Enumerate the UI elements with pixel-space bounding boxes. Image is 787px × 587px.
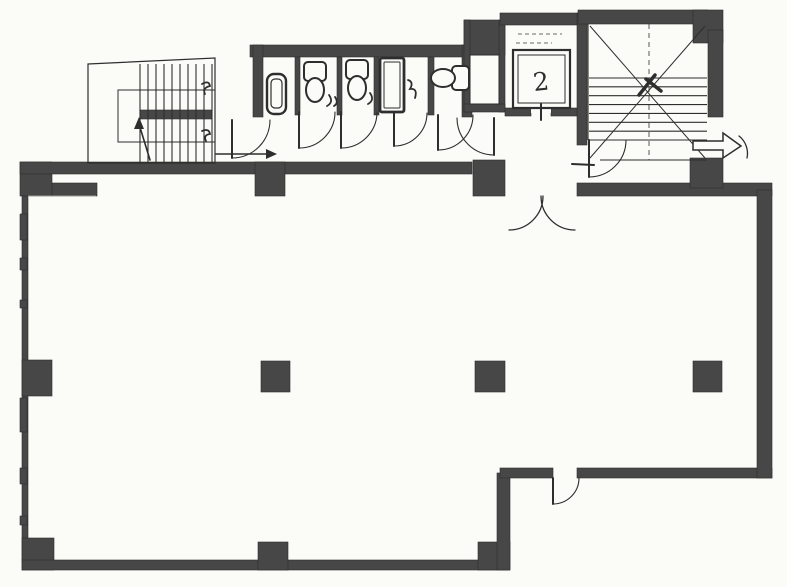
notch-wall-left bbox=[500, 468, 553, 478]
top-wall-right bbox=[577, 183, 772, 196]
double-door-left-swing bbox=[509, 196, 543, 230]
double-door-right-swing bbox=[541, 196, 575, 230]
elevator-top-wall bbox=[500, 13, 587, 25]
shaft-bottom-wall bbox=[464, 104, 505, 112]
shaft-right-wall bbox=[499, 20, 505, 112]
left-wall-dash bbox=[20, 214, 27, 240]
door-stall1-swing bbox=[299, 112, 335, 148]
left-wall-column bbox=[22, 360, 52, 396]
toilet2-bowl bbox=[348, 76, 366, 100]
floor-plan-svg: 2 bbox=[0, 0, 787, 587]
stall-divider-1 bbox=[295, 57, 300, 115]
threshold-mark bbox=[572, 164, 594, 165]
stall-divider-2 bbox=[337, 57, 342, 115]
step-vertical-wall bbox=[497, 473, 510, 570]
left-wall-dash bbox=[20, 300, 27, 308]
toilet-left-wall bbox=[253, 45, 263, 117]
left-wall-dash bbox=[20, 258, 27, 270]
free-column-a bbox=[261, 361, 290, 392]
left-wall-dash bbox=[20, 398, 27, 432]
free-column-c bbox=[693, 361, 722, 392]
shaft-inner-box bbox=[470, 55, 499, 104]
toilet-top-wall bbox=[250, 45, 472, 57]
stair1-landing-bar bbox=[140, 110, 212, 119]
bottom-wall-column bbox=[258, 542, 288, 570]
door-stall3-swing bbox=[394, 113, 427, 146]
door-exit-bottom-swing bbox=[553, 478, 579, 504]
stall-divider-4 bbox=[428, 57, 434, 115]
handwritten-mark bbox=[327, 95, 337, 106]
notch-wall-right bbox=[577, 468, 772, 478]
toilet3-bowl bbox=[431, 69, 455, 87]
left-wall-dash bbox=[20, 516, 27, 525]
elevator-front-wall-right bbox=[551, 108, 577, 116]
door-toilet-area-swing bbox=[232, 120, 270, 158]
door-stall2-swing bbox=[341, 112, 377, 148]
right-wall bbox=[757, 190, 772, 478]
handwritten-mark bbox=[202, 130, 210, 141]
stair2-lower-block bbox=[690, 158, 723, 188]
elevator-front-wall-left bbox=[505, 108, 531, 116]
toilet1-bowl bbox=[306, 78, 324, 102]
handwritten-mark bbox=[202, 82, 210, 94]
stair2-right-wall bbox=[708, 30, 723, 117]
scanned-floor-plan-page: 2 bbox=[0, 0, 787, 587]
left-wall-dash bbox=[20, 468, 27, 484]
top-wall-left bbox=[20, 162, 472, 174]
top-left-ledge bbox=[52, 183, 97, 196]
elevator-right-wall bbox=[577, 13, 587, 145]
stall-divider-3 bbox=[374, 57, 379, 115]
entrance-block-arrow bbox=[693, 133, 741, 158]
free-column-b bbox=[475, 361, 505, 392]
stair2-top-wall bbox=[578, 10, 708, 24]
handwritten-mark bbox=[408, 80, 416, 98]
entry-arrowhead bbox=[266, 149, 277, 159]
elevator-car-mark: 2 bbox=[532, 66, 551, 97]
top-wall-column bbox=[255, 162, 285, 196]
handwritten-mark bbox=[368, 93, 372, 104]
mid-top-pier bbox=[473, 160, 505, 196]
door-lobby-swing bbox=[457, 118, 494, 155]
door-stair2-swing bbox=[589, 140, 626, 177]
